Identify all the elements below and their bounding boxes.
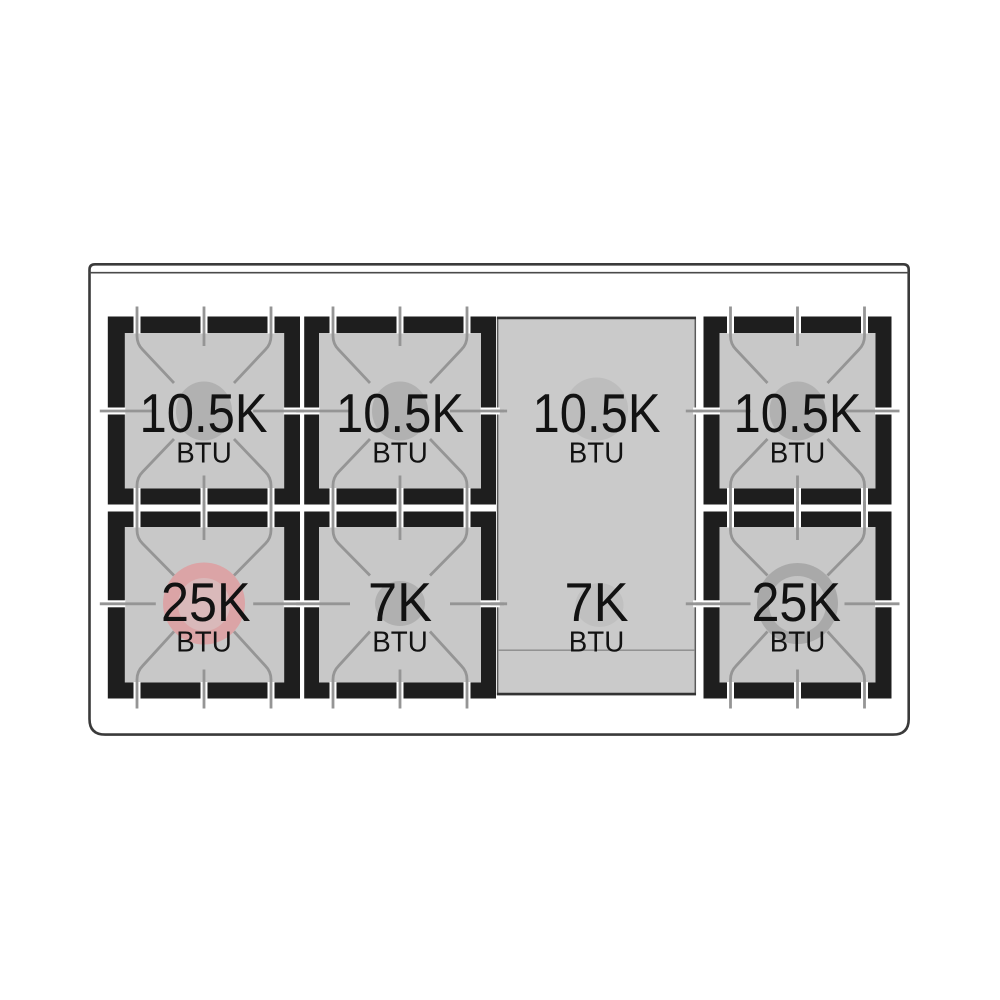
svg-text:10.5K: 10.5K <box>734 383 862 444</box>
svg-text:25K: 25K <box>751 572 841 633</box>
svg-text:10.5K: 10.5K <box>336 383 464 444</box>
svg-text:BTU: BTU <box>176 438 232 470</box>
svg-text:BTU: BTU <box>770 438 826 470</box>
svg-text:BTU: BTU <box>569 627 625 659</box>
svg-text:7K: 7K <box>565 572 629 633</box>
svg-text:7K: 7K <box>368 572 432 633</box>
svg-text:BTU: BTU <box>569 438 625 470</box>
svg-text:BTU: BTU <box>372 627 428 659</box>
svg-text:BTU: BTU <box>176 627 232 659</box>
svg-text:25K: 25K <box>161 572 251 633</box>
svg-text:BTU: BTU <box>372 438 428 470</box>
svg-text:BTU: BTU <box>770 627 826 659</box>
svg-text:10.5K: 10.5K <box>140 383 268 444</box>
svg-text:10.5K: 10.5K <box>533 383 661 444</box>
